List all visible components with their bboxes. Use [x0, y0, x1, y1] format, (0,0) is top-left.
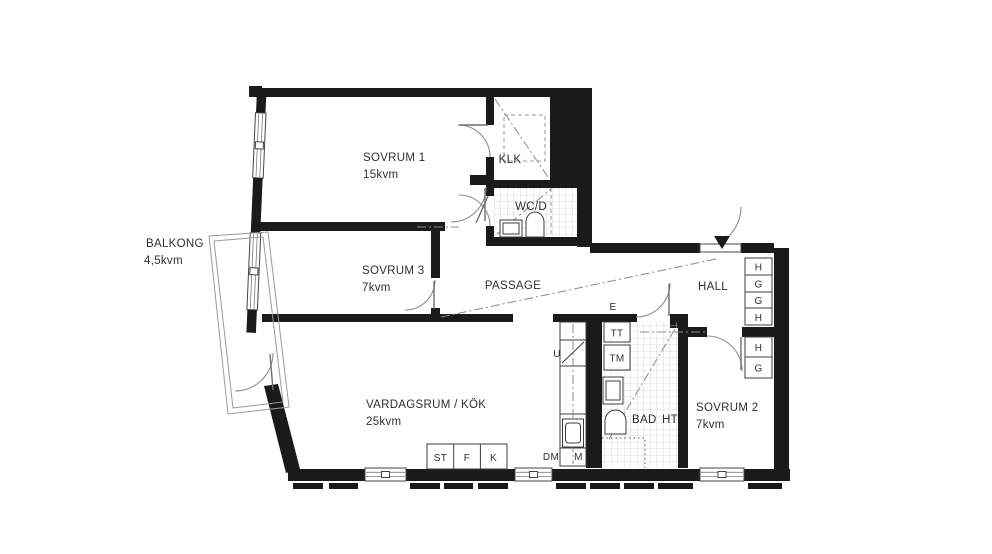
fixture-label-k: K [490, 453, 497, 464]
wall-segment [486, 226, 494, 238]
wall-segment [486, 188, 494, 196]
room-label-wcd: WC/D [515, 201, 547, 213]
window [253, 113, 266, 178]
wall-segment [774, 248, 789, 481]
balcony-door [235, 353, 273, 391]
kitchen-counter [560, 322, 586, 466]
wardrobe-label: H [755, 313, 763, 324]
wall-segment [486, 237, 577, 246]
fixture-label-f: F [464, 453, 470, 464]
room-area-sovrum3: 7kvm [362, 282, 391, 294]
bad-sink-icon [603, 377, 623, 404]
wall-segment [255, 88, 590, 97]
window [247, 233, 261, 310]
sovrum2-door [707, 336, 742, 371]
room-area-sovrum2: 7kvm [696, 419, 725, 431]
wall-segment [431, 225, 440, 278]
wall-segment [742, 327, 774, 337]
wall-segment [550, 88, 592, 183]
wall-segment [586, 314, 602, 468]
wardrobe-label: G [754, 364, 762, 375]
left-outer-wall [246, 88, 267, 333]
room-label-klk: KLK [499, 154, 522, 166]
floor-plan-drawing: H G G H H G SOVRUM 1 15kvm KLK WC/D BALK… [0, 0, 992, 554]
wcd-sink-icon [500, 220, 522, 237]
wardrobe-label: G [754, 280, 762, 291]
fixture-label-ht: HT [662, 414, 678, 426]
wall-segment [678, 322, 688, 468]
room-label-sovrum3: SOVRUM 3 [362, 265, 424, 277]
wall-segment [246, 310, 256, 333]
wardrobe-label: G [754, 296, 762, 307]
sovrum3-door [405, 280, 435, 310]
room-area-vardagsrum: 25kvm [366, 416, 401, 428]
section-line [441, 259, 716, 317]
fixture-label-st: ST [434, 453, 447, 464]
room-label-sovrum2: SOVRUM 2 [696, 402, 758, 414]
fixture-label-m: M [574, 452, 583, 463]
wall-segment [602, 314, 637, 322]
room-label-bad: BAD [632, 414, 657, 426]
hall-wardrobes: H G G H [745, 258, 772, 325]
room-label-hall: HALL [698, 281, 728, 293]
room-area-sovrum1: 15kvm [363, 169, 398, 181]
window [365, 468, 406, 481]
fixture-label-dm: DM [543, 452, 559, 463]
wardrobe-label: H [755, 343, 763, 354]
fixture-label-tm: TM [609, 354, 624, 365]
room-label-vardagsrum: VARDAGSRUM / KÖK [366, 399, 486, 411]
wardrobe-label: H [755, 263, 763, 274]
wall-segment [486, 97, 494, 125]
room-area-balkong: 4,5kvm [144, 255, 183, 267]
bad-door [636, 283, 670, 317]
room-label-sovrum1: SOVRUM 1 [363, 152, 425, 164]
room-label-balkong: BALKONG [146, 238, 204, 250]
sovrum2-wardrobes: H G [745, 337, 772, 378]
facade-ticks [293, 483, 782, 489]
kitchen-sink-icon [563, 419, 584, 447]
window [700, 468, 744, 481]
fixture-label-tt: TT [611, 329, 624, 340]
wall-segment [553, 314, 590, 322]
fixture-label-u: U [553, 349, 561, 360]
bad-toilet-icon [605, 410, 626, 434]
wall-segment [590, 243, 700, 253]
floor-plan-page: H G G H H G SOVRUM 1 15kvm KLK WC/D BALK… [0, 0, 992, 554]
fixture-label-e: E [610, 302, 617, 313]
wall-segment [741, 243, 774, 253]
wall-segment [256, 88, 267, 114]
wcd-toilet-icon [526, 212, 544, 237]
wall-segment [486, 180, 577, 188]
window [515, 468, 552, 481]
entry-door [700, 207, 741, 252]
klk-door [458, 125, 490, 157]
wall-segment [577, 183, 592, 247]
wall-segment [262, 314, 513, 322]
room-label-passage: PASSAGE [485, 280, 541, 292]
